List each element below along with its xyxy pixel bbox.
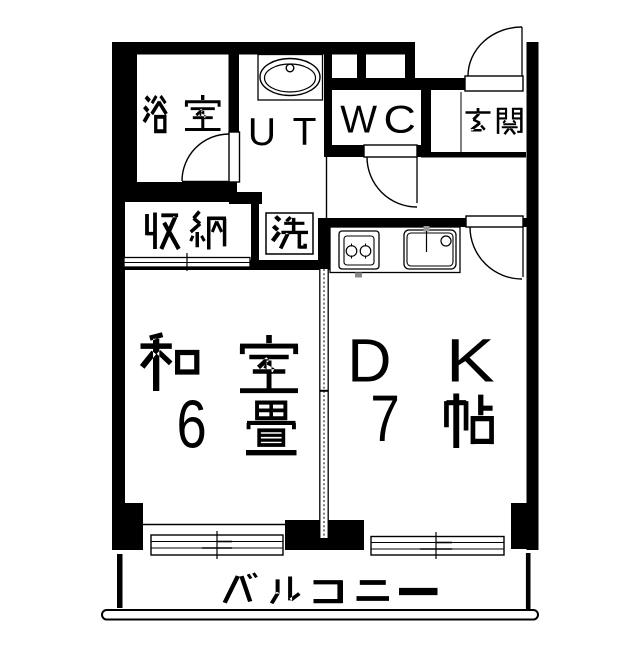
svg-text:K: K xyxy=(446,327,495,395)
svg-text:T: T xyxy=(293,111,317,154)
svg-text:7: 7 xyxy=(370,381,399,455)
svg-text:C: C xyxy=(384,97,416,141)
svg-text:U: U xyxy=(248,111,276,154)
svg-text:6: 6 xyxy=(176,387,206,463)
svg-text:W: W xyxy=(340,99,377,142)
